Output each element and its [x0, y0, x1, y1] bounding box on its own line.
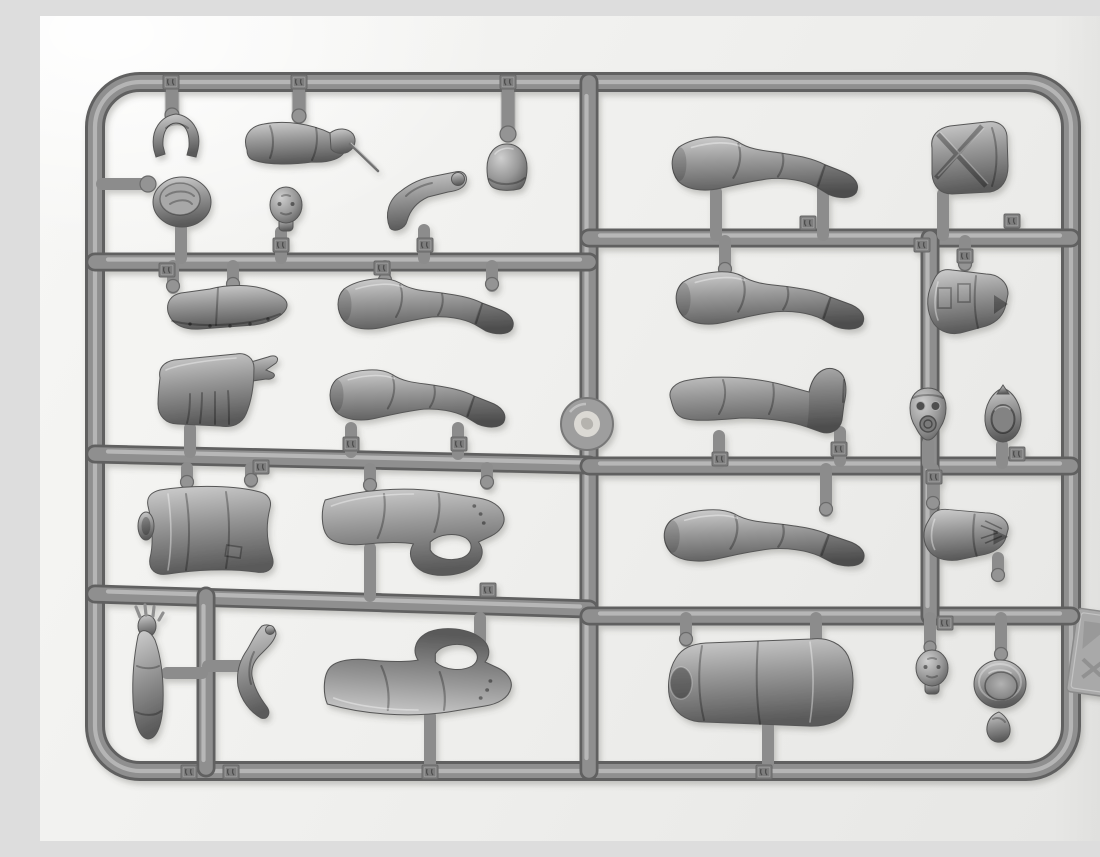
injection-gate-disc	[561, 398, 613, 450]
part-number-tag	[374, 261, 390, 275]
part-number-tag	[343, 437, 359, 451]
part-number-tag	[273, 238, 289, 252]
part-number-tag	[422, 765, 438, 779]
part-number-tag	[831, 442, 847, 456]
part-number-tag	[712, 452, 728, 466]
part-leg-right-middle	[676, 272, 864, 329]
part-number-tag	[500, 75, 516, 89]
part-bedroll	[932, 122, 1008, 194]
runner-left-2	[95, 452, 589, 466]
part-number-tag	[451, 437, 467, 451]
runner-left-3	[95, 592, 589, 610]
part-number-tag	[1004, 214, 1020, 228]
part-number-tag	[800, 216, 816, 230]
part-cap-curved	[153, 114, 199, 157]
part-number-tag	[756, 765, 772, 779]
runner-right-1	[589, 236, 1071, 239]
part-leg-boot-raised	[670, 368, 846, 432]
part-number-tag	[163, 75, 179, 89]
part-number-tag	[1009, 447, 1025, 461]
part-number-tag	[417, 238, 433, 252]
part-arm-hand-tucked-lower	[324, 629, 511, 715]
part-helmet-1	[487, 144, 527, 190]
part-arm-bent-small	[237, 625, 276, 718]
part-tunic-pockets	[928, 270, 1008, 334]
part-peaked-cap	[153, 177, 211, 227]
part-small-pouch	[987, 712, 1010, 742]
part-tunic-back	[158, 354, 278, 427]
part-number-tag	[253, 460, 269, 474]
part-number-tag	[159, 263, 175, 277]
part-tunic-front	[138, 486, 273, 574]
part-head-1	[270, 187, 302, 231]
part-head-gas-mask	[910, 388, 946, 440]
part-number-tag	[926, 470, 942, 484]
sub-runner-left	[204, 596, 207, 768]
part-number-tag	[914, 238, 930, 252]
part-number-tag	[181, 765, 197, 779]
sprue	[95, 75, 1100, 779]
part-helmet-interior	[974, 660, 1026, 708]
part-hood	[985, 385, 1021, 442]
part-leg-right-top	[672, 136, 859, 198]
part-number-tag	[957, 249, 973, 263]
part-arm-hand-tucked-upper	[322, 489, 504, 575]
part-ankle-boot	[168, 285, 287, 329]
part-number-tag	[223, 765, 239, 779]
sprue-photo: Grey plastic model-kit figure sprue	[40, 16, 1100, 841]
part-number-tag	[291, 75, 307, 89]
part-head-2	[916, 650, 948, 694]
sprue-gates	[102, 89, 1008, 765]
part-greatcoat-torso	[669, 639, 854, 726]
part-number-tag	[937, 616, 953, 630]
part-number-tag	[480, 583, 496, 597]
part-arm-cigarette	[246, 122, 378, 171]
part-bent-arm	[387, 172, 466, 231]
part-leg-right-lower	[664, 510, 864, 566]
part-arm-raised-hand	[133, 605, 163, 739]
part-leg-left-lower	[330, 369, 506, 427]
